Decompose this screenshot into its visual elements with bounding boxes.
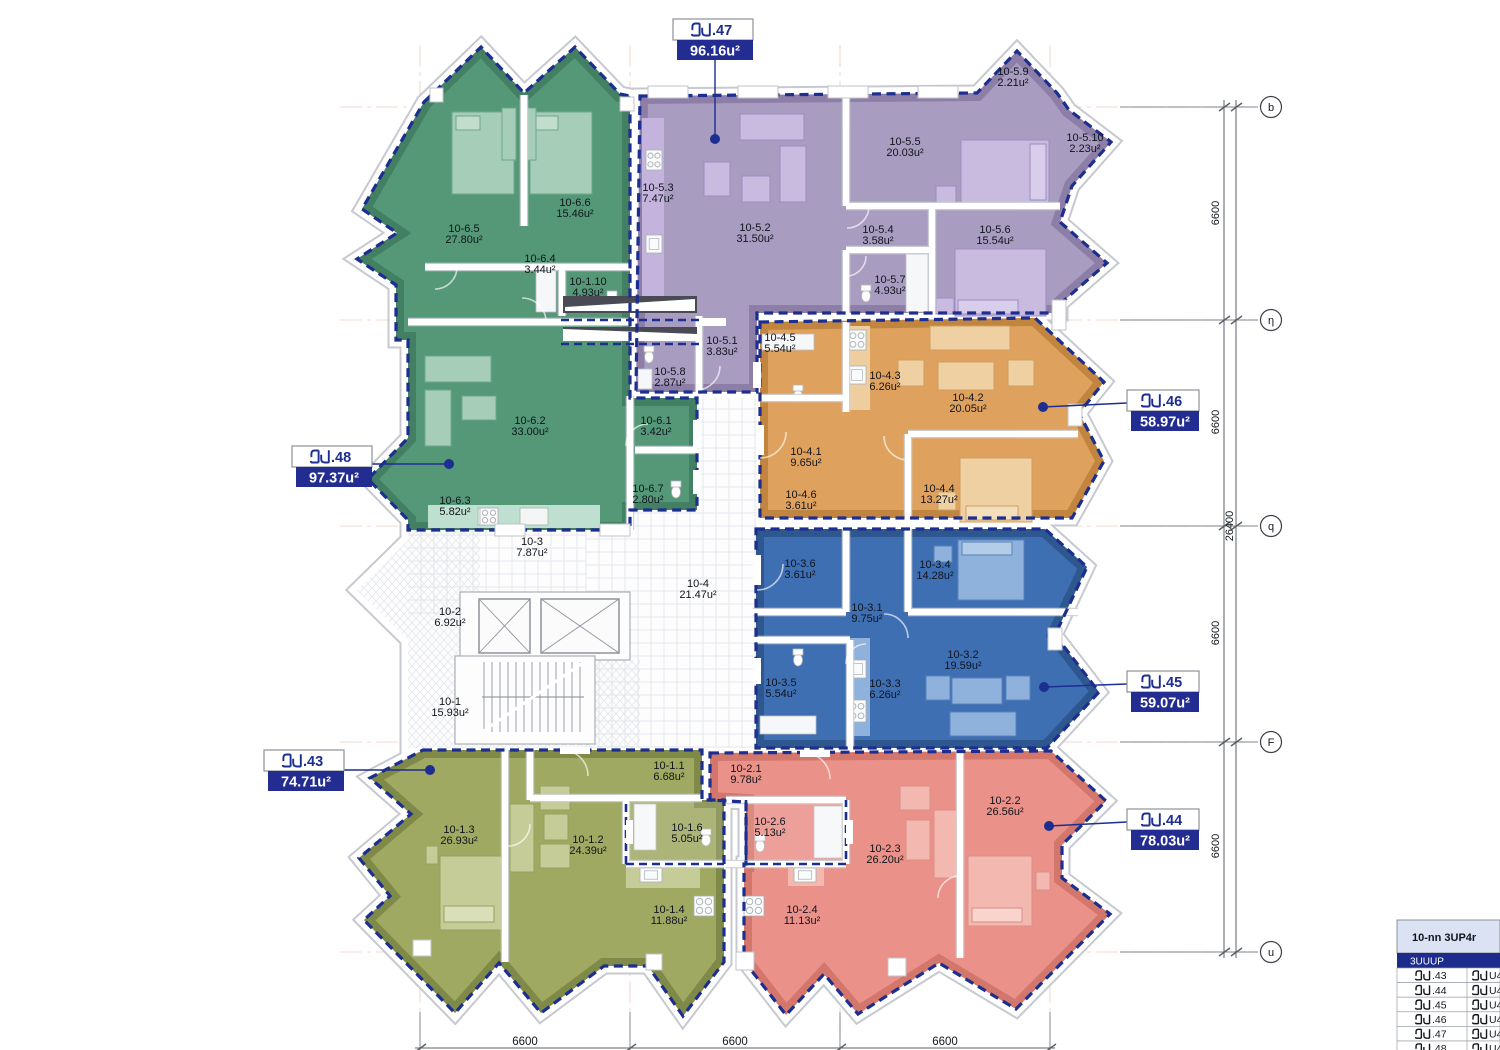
svg-text:2.80u²: 2.80u² bbox=[632, 494, 664, 506]
svg-text:6600: 6600 bbox=[1210, 410, 1222, 434]
svg-text:26400: 26400 bbox=[1224, 511, 1236, 542]
svg-text:.46: .46 bbox=[1432, 1014, 1447, 1026]
svg-text:7.47u²: 7.47u² bbox=[642, 193, 674, 205]
svg-text:15.46u²: 15.46u² bbox=[556, 208, 594, 220]
svg-text:4.93u²: 4.93u² bbox=[572, 287, 604, 299]
svg-text:5.54u²: 5.54u² bbox=[765, 688, 797, 700]
svg-text:7.87u²: 7.87u² bbox=[516, 547, 548, 559]
svg-text:21.47u²: 21.47u² bbox=[679, 589, 717, 601]
svg-text:.46: .46 bbox=[1162, 394, 1182, 410]
svg-text:.44: .44 bbox=[1162, 813, 1182, 829]
svg-text:6.92u²: 6.92u² bbox=[434, 617, 466, 629]
svg-text:.43: .43 bbox=[303, 754, 323, 770]
svg-text:58.97u²: 58.97u² bbox=[1140, 415, 1190, 431]
svg-text:20.05u²: 20.05u² bbox=[949, 403, 987, 415]
svg-text:5.54u²: 5.54u² bbox=[764, 343, 796, 355]
svg-text:5.82u²: 5.82u² bbox=[439, 506, 471, 518]
svg-text:.45: .45 bbox=[1432, 999, 1447, 1011]
svg-text:6.26u²: 6.26u² bbox=[869, 381, 901, 393]
svg-text:5.05u²: 5.05u² bbox=[671, 833, 703, 845]
svg-text:U4: U4 bbox=[1489, 1014, 1500, 1026]
svg-text:6600: 6600 bbox=[1210, 834, 1222, 858]
svg-text:78.03u²: 78.03u² bbox=[1140, 834, 1190, 850]
svg-text:6600: 6600 bbox=[722, 1036, 748, 1048]
svg-text:η: η bbox=[1268, 315, 1274, 327]
svg-text:U4: U4 bbox=[1489, 1029, 1500, 1041]
svg-text:6600: 6600 bbox=[512, 1036, 538, 1048]
svg-text:.45: .45 bbox=[1162, 675, 1182, 691]
svg-text:6600: 6600 bbox=[932, 1036, 958, 1048]
svg-text:q: q bbox=[1268, 521, 1274, 533]
svg-text:20.03u²: 20.03u² bbox=[886, 147, 924, 159]
svg-text:59.07u²: 59.07u² bbox=[1140, 696, 1190, 712]
svg-text:27.80u²: 27.80u² bbox=[445, 234, 483, 246]
svg-text:3.58u²: 3.58u² bbox=[862, 235, 894, 247]
svg-text:3.44u²: 3.44u² bbox=[524, 264, 556, 276]
svg-text:F: F bbox=[1268, 737, 1275, 749]
svg-text:26.56u²: 26.56u² bbox=[986, 806, 1024, 818]
svg-text:.44: .44 bbox=[1432, 985, 1447, 997]
svg-text:U4: U4 bbox=[1489, 999, 1500, 1011]
svg-text:74.71u²: 74.71u² bbox=[281, 775, 331, 791]
svg-text:31.50u²: 31.50u² bbox=[736, 233, 774, 245]
svg-text:2.87u²: 2.87u² bbox=[654, 377, 686, 389]
svg-text:2.21u²: 2.21u² bbox=[997, 77, 1029, 89]
svg-text:.48: .48 bbox=[331, 450, 351, 466]
svg-text:33.00u²: 33.00u² bbox=[511, 426, 549, 438]
svg-text:11.88u²: 11.88u² bbox=[651, 915, 688, 927]
svg-text:.43: .43 bbox=[1432, 970, 1447, 982]
svg-text:.47: .47 bbox=[712, 23, 732, 39]
svg-text:3.61u²: 3.61u² bbox=[785, 500, 817, 512]
svg-text:96.16u²: 96.16u² bbox=[690, 44, 740, 60]
svg-text:3UUUP: 3UUUP bbox=[1410, 957, 1444, 968]
svg-text:10-nn 3UP4r: 10-nn 3UP4r bbox=[1412, 932, 1477, 944]
svg-text:11.13u²: 11.13u² bbox=[784, 915, 821, 927]
svg-text:u: u bbox=[1268, 947, 1274, 959]
svg-text:3.61u²: 3.61u² bbox=[784, 569, 816, 581]
svg-text:24.39u²: 24.39u² bbox=[569, 845, 607, 857]
svg-text:6600: 6600 bbox=[1210, 201, 1222, 225]
svg-text:.48: .48 bbox=[1432, 1043, 1447, 1050]
svg-text:9.75u²: 9.75u² bbox=[851, 613, 883, 625]
svg-text:9.65u²: 9.65u² bbox=[790, 457, 822, 469]
svg-text:2.23u²: 2.23u² bbox=[1069, 143, 1101, 155]
svg-text:6.26u²: 6.26u² bbox=[869, 689, 901, 701]
svg-text:13.27u²: 13.27u² bbox=[920, 494, 958, 506]
svg-text:14.28u²: 14.28u² bbox=[916, 570, 954, 582]
svg-text:.47: .47 bbox=[1432, 1029, 1447, 1041]
svg-text:9.78u²: 9.78u² bbox=[730, 774, 762, 786]
svg-text:97.37u²: 97.37u² bbox=[309, 471, 359, 487]
svg-text:U4: U4 bbox=[1489, 985, 1500, 997]
svg-text:3.42u²: 3.42u² bbox=[640, 426, 672, 438]
svg-text:26.93u²: 26.93u² bbox=[440, 835, 478, 847]
svg-text:U4: U4 bbox=[1489, 970, 1500, 982]
svg-text:b: b bbox=[1268, 102, 1274, 114]
svg-text:6600: 6600 bbox=[1210, 621, 1222, 645]
svg-text:4.93u²: 4.93u² bbox=[874, 285, 906, 297]
svg-text:U4: U4 bbox=[1489, 1043, 1500, 1050]
svg-text:15.54u²: 15.54u² bbox=[976, 235, 1014, 247]
svg-text:3.83u²: 3.83u² bbox=[706, 346, 738, 358]
svg-text:26.20u²: 26.20u² bbox=[866, 854, 904, 866]
svg-text:15.93u²: 15.93u² bbox=[431, 707, 469, 719]
svg-text:6.68u²: 6.68u² bbox=[653, 771, 685, 783]
svg-text:19.59u²: 19.59u² bbox=[944, 660, 982, 672]
svg-text:5.13u²: 5.13u² bbox=[754, 827, 786, 839]
